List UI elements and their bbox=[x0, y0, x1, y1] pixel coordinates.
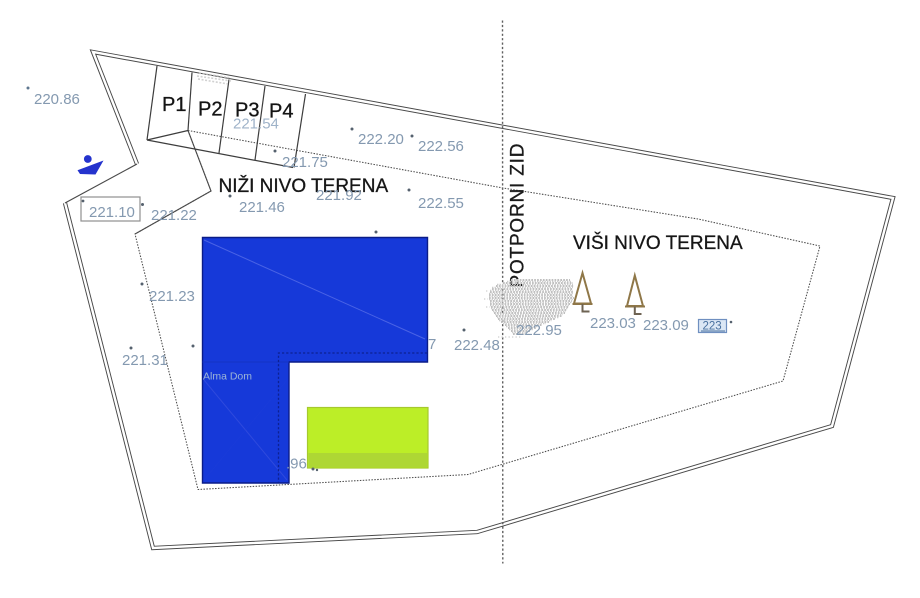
svg-text:221.92: 221.92 bbox=[316, 187, 362, 204]
svg-text:220.86: 220.86 bbox=[34, 91, 80, 108]
svg-text:221.22: 221.22 bbox=[151, 207, 197, 224]
svg-text:221.10: 221.10 bbox=[89, 204, 135, 221]
svg-text:222.56: 222.56 bbox=[418, 138, 464, 155]
svg-text:POTPORNI ZID: POTPORNI ZID bbox=[508, 143, 529, 288]
svg-text:.96: .96 bbox=[286, 456, 307, 473]
svg-text:222.20: 222.20 bbox=[358, 131, 404, 148]
svg-text:221.31: 221.31 bbox=[122, 352, 168, 369]
svg-text:Alma Dom: Alma Dom bbox=[203, 371, 252, 383]
svg-text:222.55: 222.55 bbox=[418, 195, 464, 212]
svg-text:223.09: 223.09 bbox=[643, 317, 689, 334]
svg-text:P2: P2 bbox=[198, 99, 222, 121]
svg-text:222.48: 222.48 bbox=[454, 337, 500, 354]
svg-text:221.75: 221.75 bbox=[282, 154, 328, 171]
svg-text:223.03: 223.03 bbox=[590, 315, 636, 332]
svg-text:221.46: 221.46 bbox=[239, 199, 285, 216]
svg-text:VIŠI NIVO TERENA: VIŠI NIVO TERENA bbox=[573, 232, 743, 254]
svg-text:221.54: 221.54 bbox=[233, 116, 279, 133]
svg-text:221.23: 221.23 bbox=[149, 288, 195, 305]
svg-text:222.95: 222.95 bbox=[516, 322, 562, 339]
svg-text:P1: P1 bbox=[162, 94, 186, 116]
svg-text:7: 7 bbox=[428, 336, 436, 353]
svg-text:NIŽI NIVO TERENA: NIŽI NIVO TERENA bbox=[219, 175, 389, 197]
